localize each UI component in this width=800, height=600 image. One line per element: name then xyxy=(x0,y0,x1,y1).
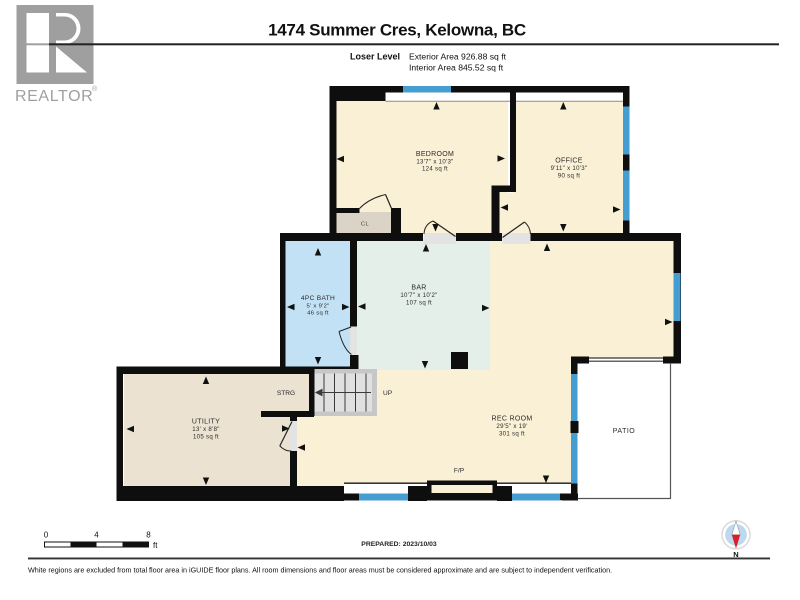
svg-text:PREPARED: 2023/10/03: PREPARED: 2023/10/03 xyxy=(361,541,437,548)
svg-text:REALTOR: REALTOR xyxy=(15,88,93,105)
svg-text:13' x 8'8": 13' x 8'8" xyxy=(192,426,219,433)
svg-text:105 sq ft: 105 sq ft xyxy=(193,434,219,441)
svg-text:Exterior Area 926.88 sq ft: Exterior Area 926.88 sq ft xyxy=(409,52,507,62)
svg-text:10'7" x 10'2": 10'7" x 10'2" xyxy=(400,292,437,299)
svg-text:Loser Level: Loser Level xyxy=(350,52,400,62)
svg-text:REC ROOM: REC ROOM xyxy=(492,416,533,423)
svg-text:ft: ft xyxy=(153,541,158,550)
svg-text:46 sq ft: 46 sq ft xyxy=(307,311,329,317)
svg-text:0: 0 xyxy=(44,531,49,540)
svg-text:CL: CL xyxy=(361,222,370,228)
svg-text:BEDROOM: BEDROOM xyxy=(416,151,454,158)
svg-text:107 sq ft: 107 sq ft xyxy=(406,300,432,307)
svg-text:4: 4 xyxy=(94,531,99,540)
svg-text:PATIO: PATIO xyxy=(613,428,636,435)
svg-text:F/P: F/P xyxy=(454,468,465,475)
svg-text:301 sq ft: 301 sq ft xyxy=(499,431,525,438)
svg-text:STRG: STRG xyxy=(277,390,295,397)
svg-text:N: N xyxy=(733,550,738,559)
svg-text:BAR: BAR xyxy=(411,285,426,292)
svg-text:Interior Area 845.52 sq ft: Interior Area 845.52 sq ft xyxy=(409,63,504,73)
svg-text:4PC BATH: 4PC BATH xyxy=(301,295,335,302)
svg-text:OFFICE: OFFICE xyxy=(555,158,582,165)
svg-text:29'5" x 19': 29'5" x 19' xyxy=(496,423,527,430)
svg-text:124 sq ft: 124 sq ft xyxy=(422,166,448,173)
svg-text:5' x 9'2": 5' x 9'2" xyxy=(306,304,329,310)
svg-text:1474 Summer Cres, Kelowna, BC: 1474 Summer Cres, Kelowna, BC xyxy=(268,21,526,40)
svg-text:8: 8 xyxy=(146,531,151,540)
svg-text:UTILITY: UTILITY xyxy=(192,419,220,426)
svg-text:13'7" x 10'3": 13'7" x 10'3" xyxy=(416,159,453,166)
svg-text:White regions are excluded fro: White regions are excluded from total fl… xyxy=(28,566,612,575)
svg-text:90 sq ft: 90 sq ft xyxy=(558,173,580,180)
svg-text:9'11" x 10'3": 9'11" x 10'3" xyxy=(551,165,588,172)
svg-text:UP: UP xyxy=(383,390,393,397)
svg-text:®: ® xyxy=(92,85,98,93)
